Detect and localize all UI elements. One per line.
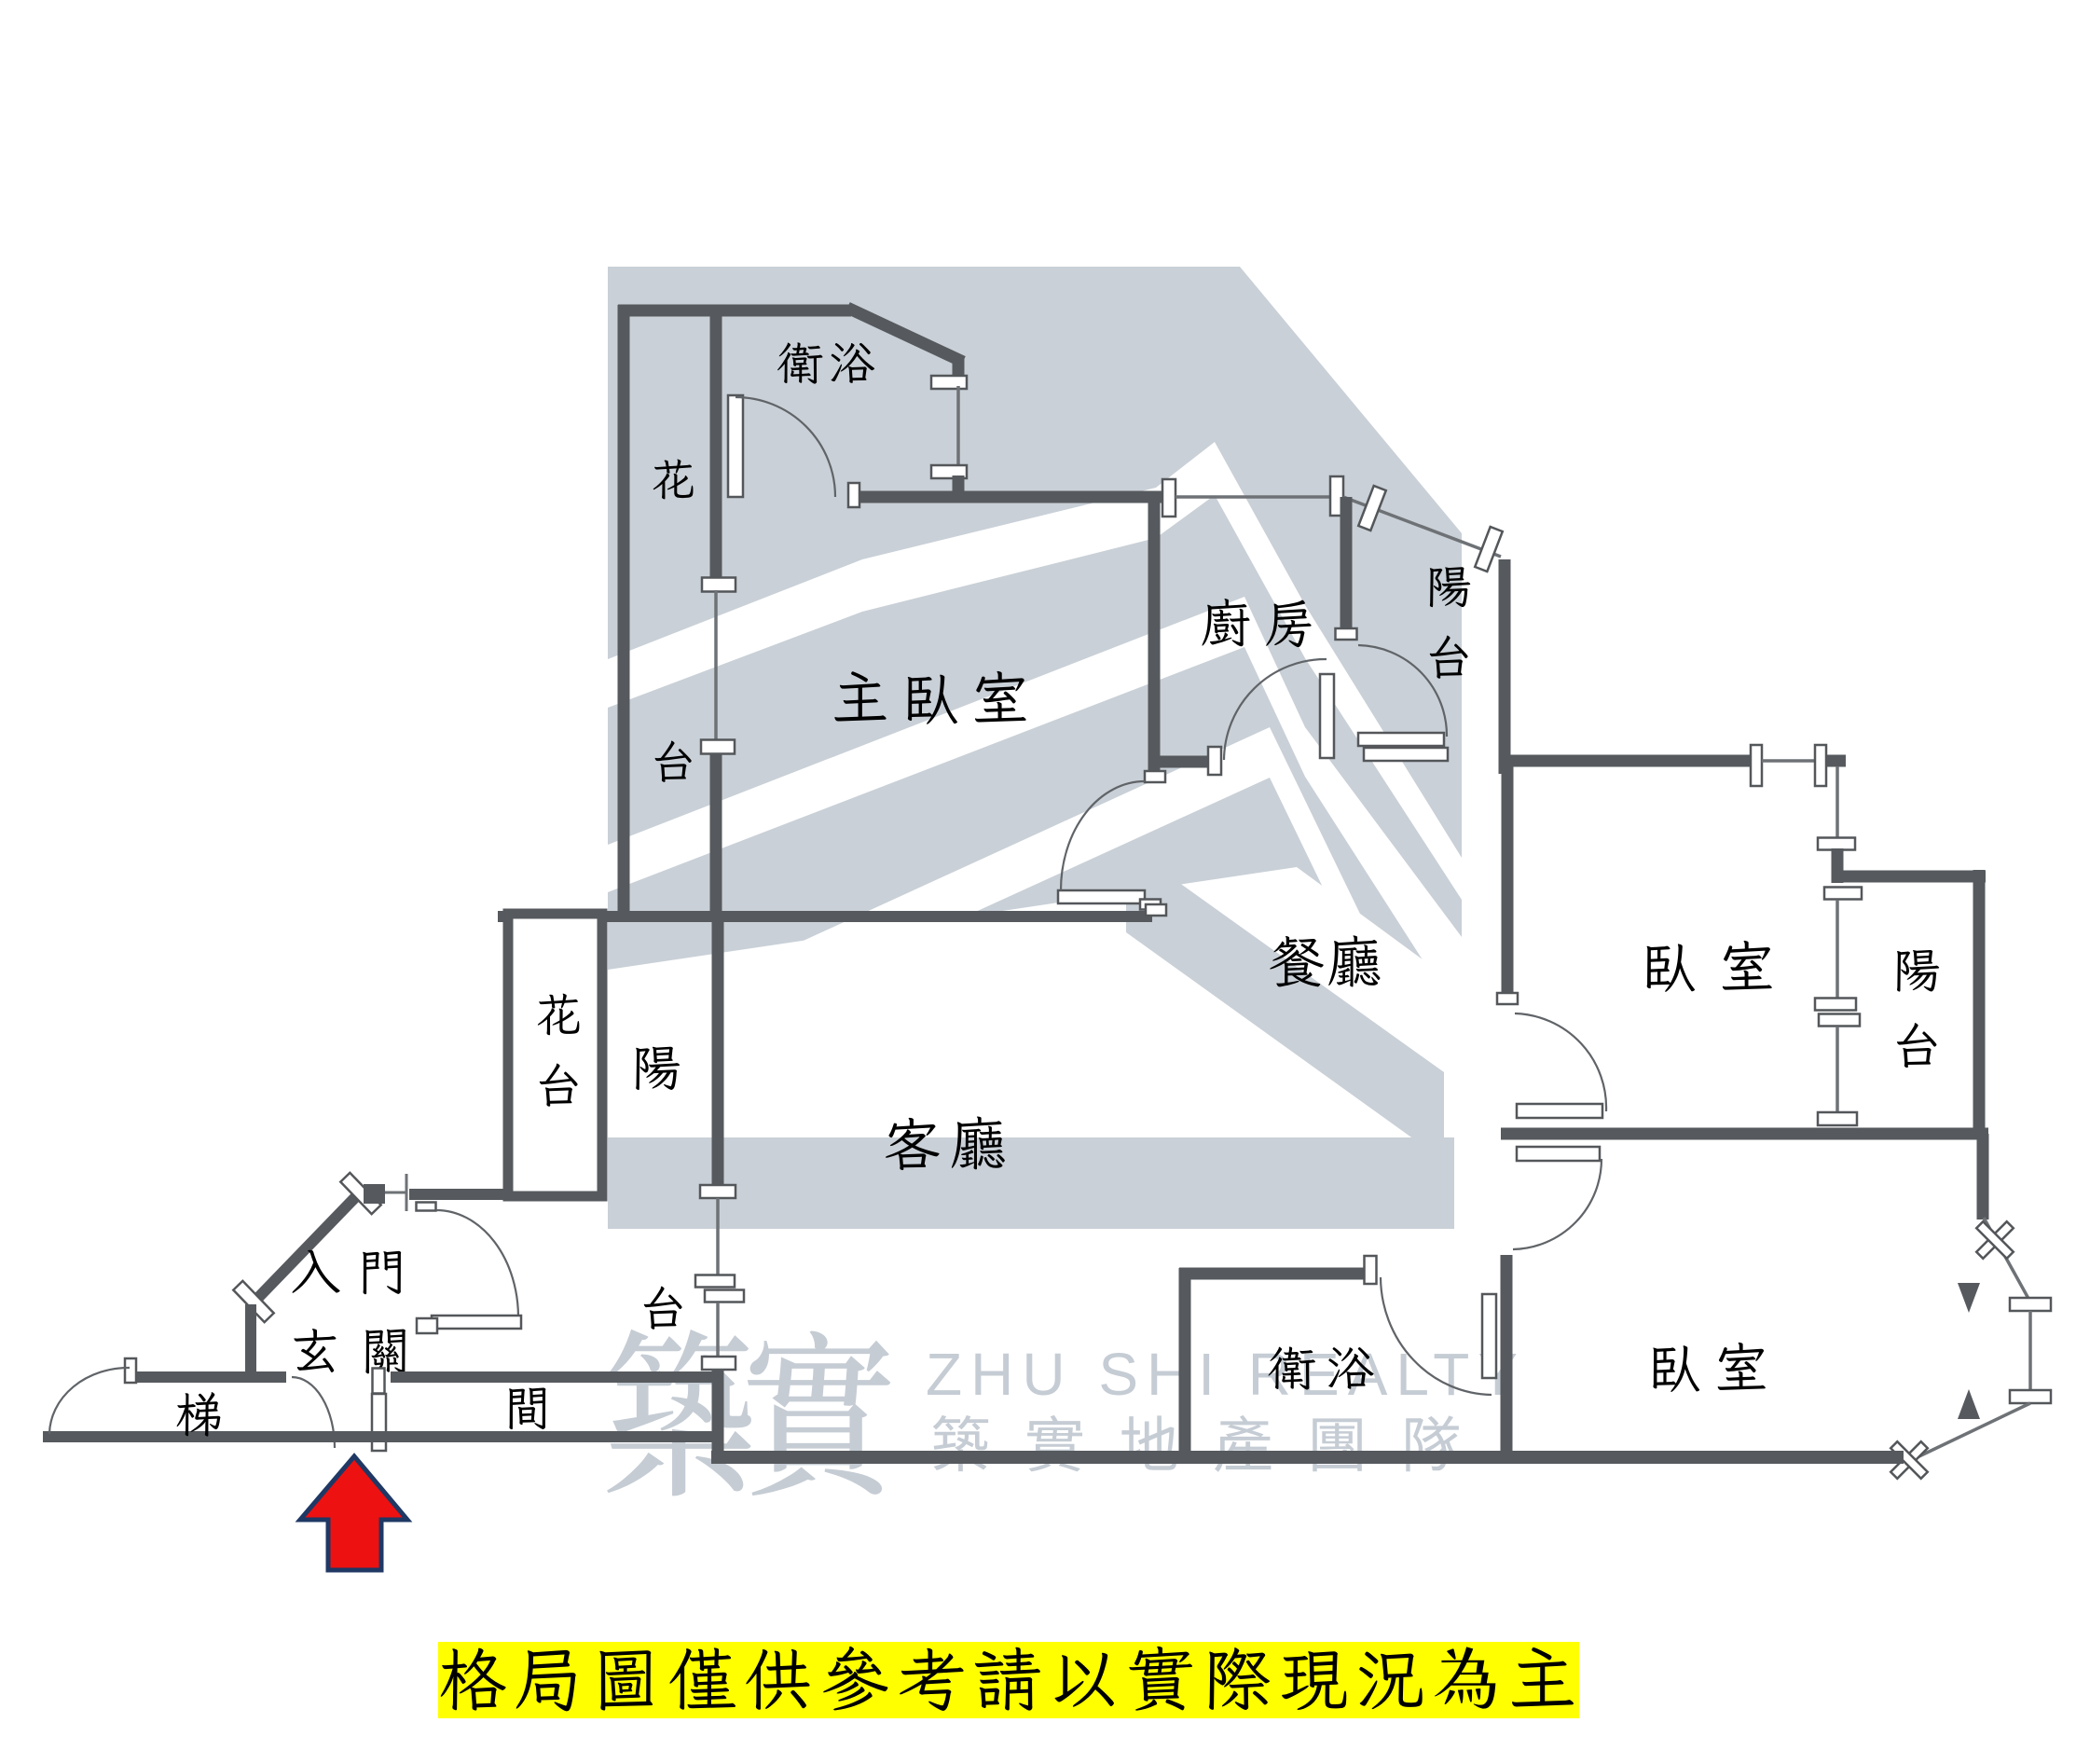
svg-text:ZHU SHI REALTY: ZHU SHI REALTY: [926, 1341, 1526, 1408]
